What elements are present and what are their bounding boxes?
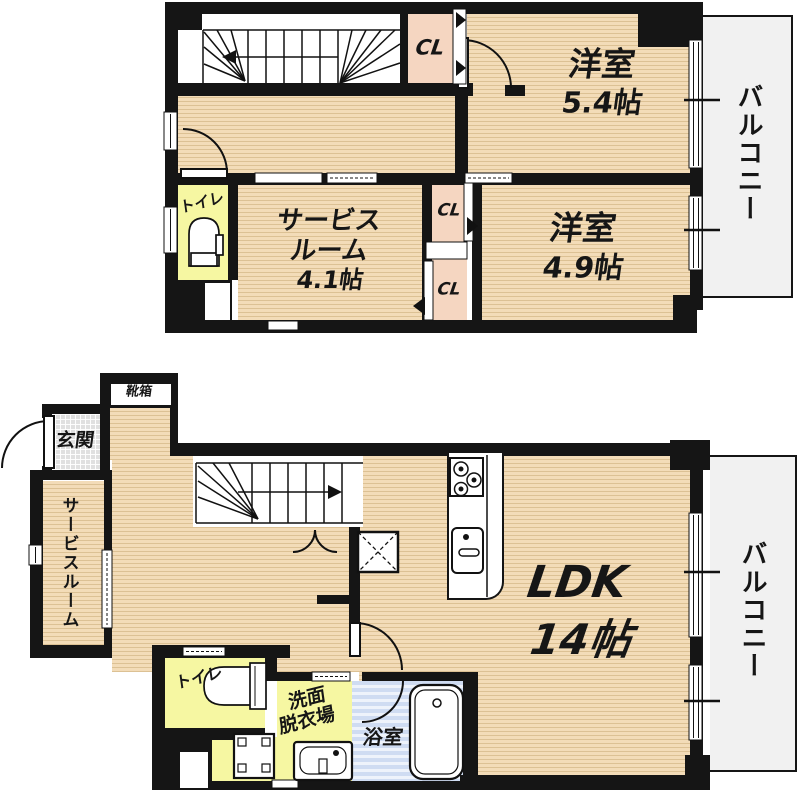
wall [30,473,43,658]
wall [472,185,482,320]
wall [30,645,112,658]
shoebox-label: 靴箱 [125,386,153,399]
wall [265,672,348,681]
wall [362,672,478,681]
floor-plan: CL 洋室 5.4帖 バルコニー トイレ サービス ルーム 4.1帖 CL CL… [0,0,800,792]
closet-shelf [426,242,467,259]
entry-corridor-1f [110,404,172,460]
wall [104,473,112,550]
wall [400,13,408,83]
wall [165,2,703,14]
service-1f-label: サービスルーム [60,497,77,630]
entrance-label: 玄関 [55,432,96,451]
service-2f-line3: 4.1帖 [295,268,365,292]
balcony-1f-label: バルコニー [739,540,765,680]
stairs-1f-area [193,452,363,527]
entrance-door-arc [2,421,49,468]
wall [690,456,703,775]
wall [178,83,473,96]
wall [505,85,525,96]
wall [349,527,360,623]
wall [42,404,52,418]
closet2-label: CL [436,203,462,220]
wall [685,755,710,790]
wall [170,443,710,456]
service-2f-line1: サービス [275,208,383,234]
wall [673,295,697,333]
wall [422,185,432,320]
service-2f-line2: ルーム [289,238,370,264]
ldk-size-label: 14帖 [528,619,634,661]
wall [463,672,478,790]
pipe-space-box [180,752,208,788]
wall [317,595,349,604]
closet1-label: CL [414,38,446,59]
wall [228,185,238,280]
pipe-space-box [205,283,230,320]
wall [178,173,690,185]
wall [178,13,202,30]
room49-size-label: 4.9帖 [541,254,625,283]
ldk-name-label: LDK [525,561,630,605]
room54-name-label: 洋室 [567,48,638,81]
stairs-2f-area [178,13,408,83]
balcony-2f-label: バルコニー [735,83,761,223]
wall [455,95,468,178]
bath-label: 浴室 [362,727,405,747]
room49-name-label: 洋室 [548,212,619,245]
wall [165,320,697,333]
wall [104,628,112,658]
room54-size-label: 5.4帖 [560,89,644,118]
closet3-label: CL [436,282,462,299]
kitchen-counter [447,453,504,600]
hall-2f [178,90,455,175]
washroom-lower [212,737,352,781]
wall [690,14,703,310]
wall [460,775,710,790]
